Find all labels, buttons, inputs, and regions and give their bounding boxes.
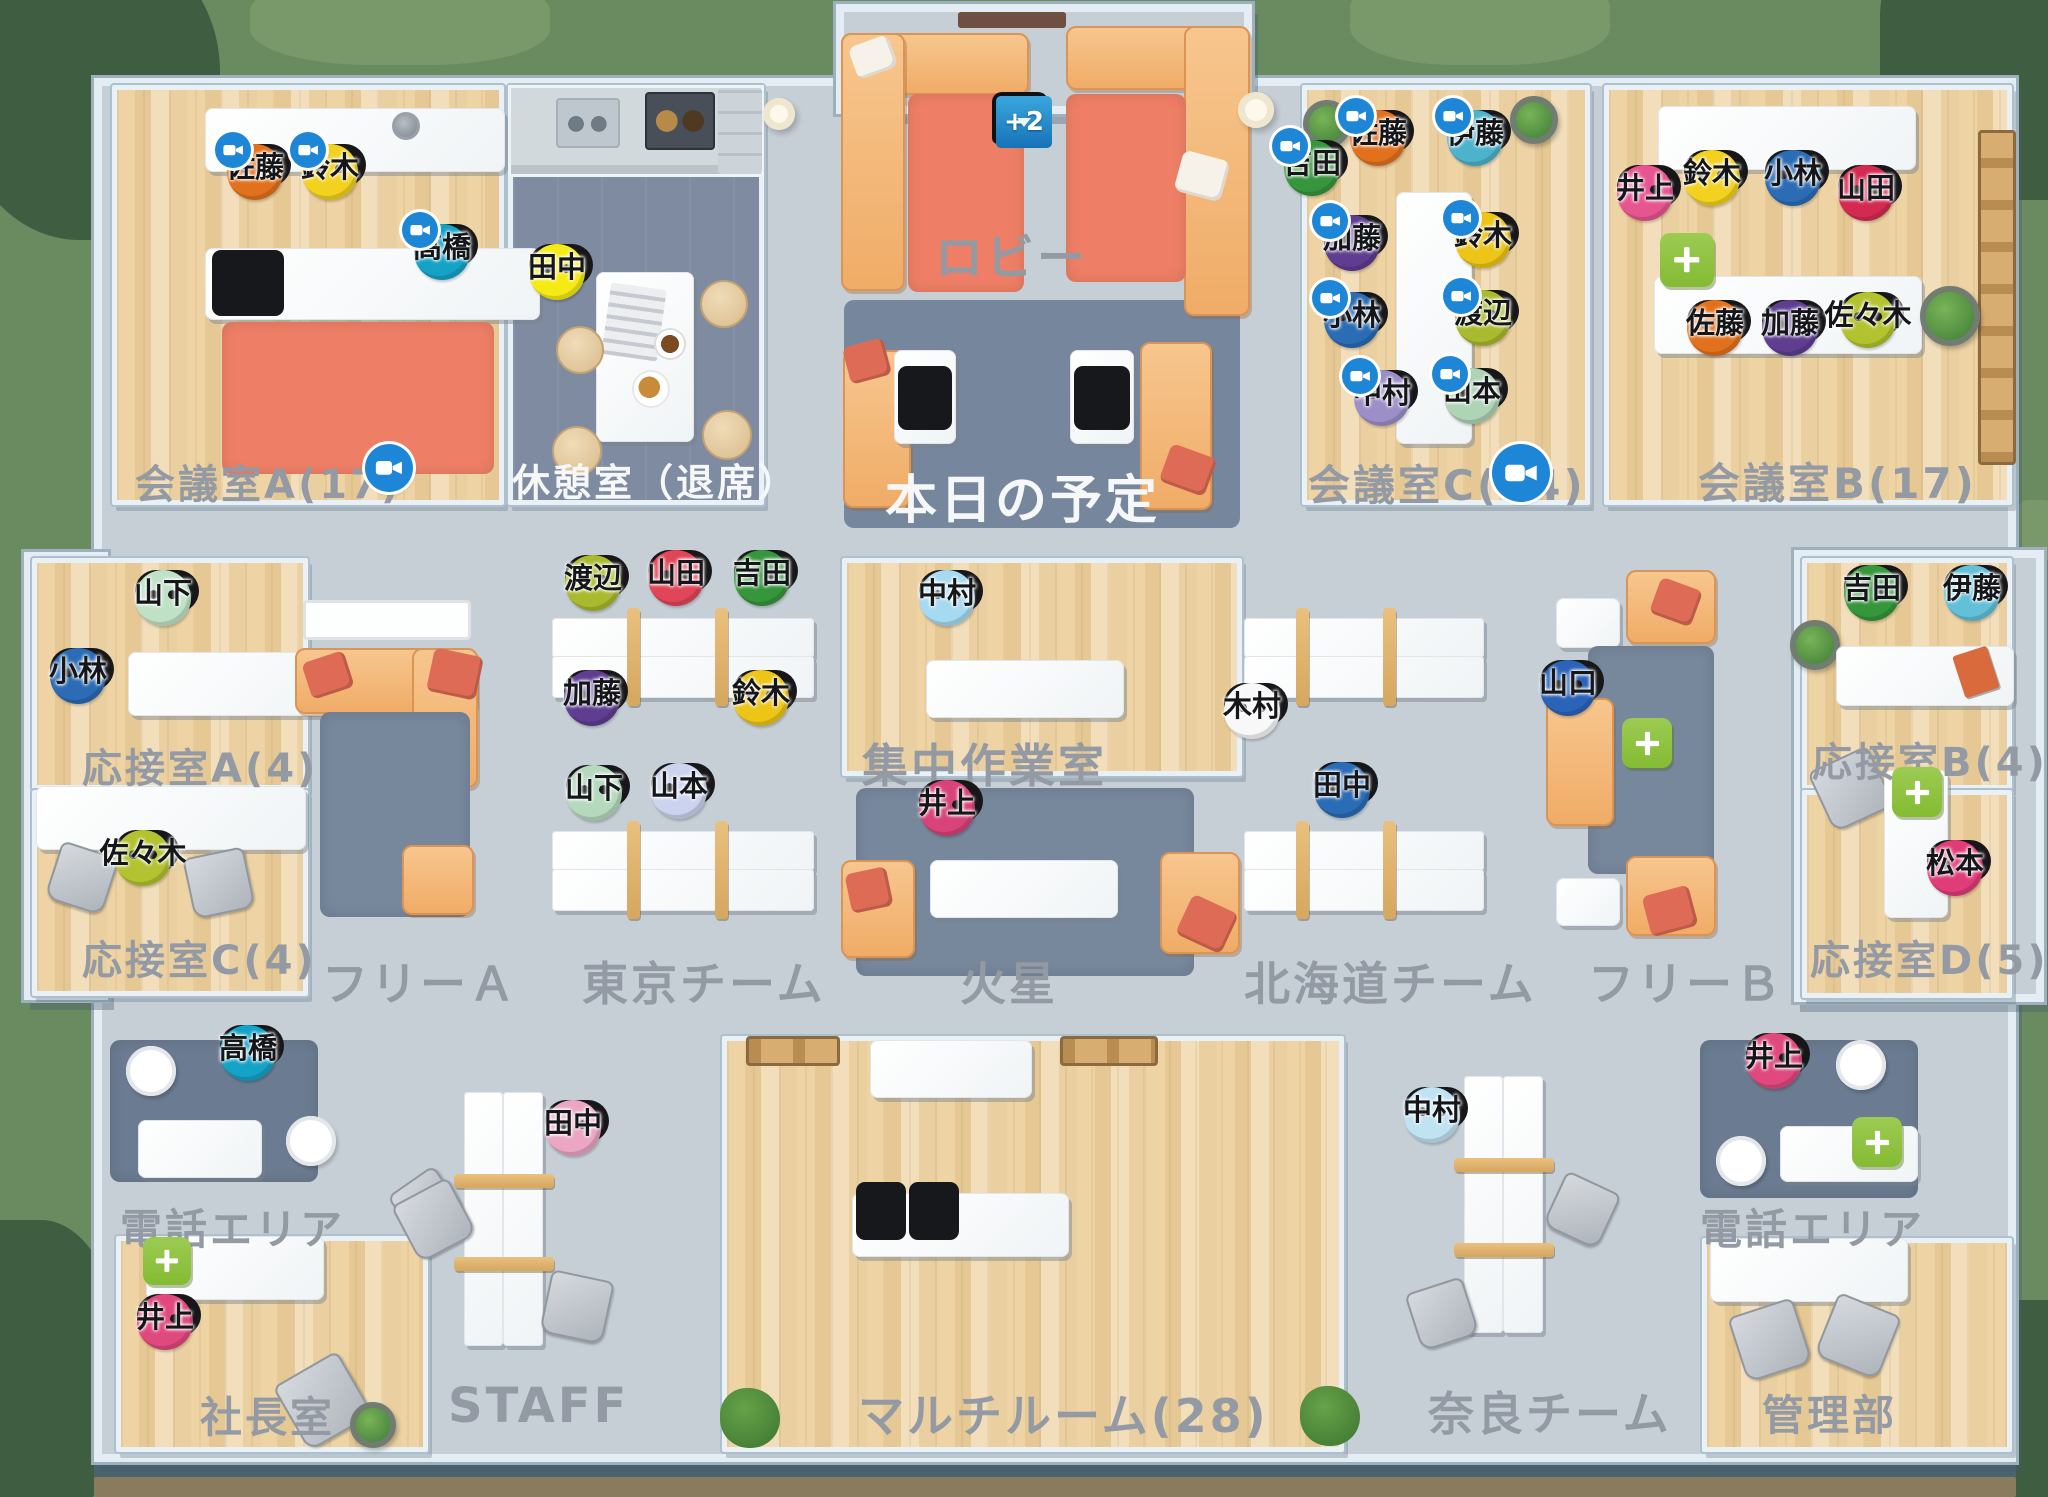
add-object-button[interactable] <box>1852 1117 1902 1167</box>
video-on-badge-icon <box>1312 203 1348 239</box>
room-label-phone-area-right: 電話エリア <box>1700 1196 1925 1257</box>
cafe-chair <box>700 280 748 328</box>
office-chair <box>182 846 256 920</box>
avatar-name: 中村 <box>918 570 976 612</box>
room-label-free-b: フリーＢ <box>1588 948 1784 1014</box>
avatar[interactable]: 伊藤 <box>1447 110 1503 166</box>
monitor-share-icon <box>856 1182 906 1240</box>
desk-divider <box>1454 1158 1554 1172</box>
pod-chair <box>1716 1136 1766 1186</box>
bush <box>720 1388 780 1448</box>
avatar-name: 山口 <box>1539 660 1597 702</box>
avatar[interactable]: 鈴木 <box>302 144 358 200</box>
room-label-break-room: 休憩室（退席） <box>512 452 799 507</box>
video-on-badge-icon <box>1435 98 1471 134</box>
add-object-button[interactable] <box>1660 233 1714 287</box>
video-on-badge-icon <box>1443 278 1479 314</box>
room-label-recep-d: 応接室D(5) <box>1810 928 2048 986</box>
avatar-name: 伊藤 <box>1943 565 2001 607</box>
desk-divider <box>627 821 640 919</box>
avatar[interactable]: 伊藤 <box>1944 565 2000 621</box>
room-label-recep-c: 応接室C(4) <box>82 928 317 986</box>
room-label-lobby: ロビー <box>935 218 1088 288</box>
avatar-name: 田中 <box>544 1100 602 1142</box>
room-label-admin-dept: 管理部 <box>1762 1382 1897 1443</box>
desk <box>1244 831 1484 871</box>
table <box>930 860 1118 918</box>
avatar-name: 山田 <box>647 550 705 592</box>
office-chair <box>539 1269 615 1345</box>
room-label-multi-room: マルチルーム(28) <box>858 1380 1269 1446</box>
desk-divider <box>1296 608 1309 706</box>
avatar[interactable]: 山本 <box>1444 368 1500 424</box>
room-label-free-a: フリーＡ <box>322 948 518 1014</box>
add-object-button[interactable] <box>1892 767 1942 817</box>
video-on-badge-icon <box>1432 356 1468 392</box>
room-label-meeting-b: 会議室B(17) <box>1698 450 1977 511</box>
cushion <box>844 866 893 914</box>
room-video-call-icon[interactable] <box>1492 444 1550 502</box>
avatar-name: 山下 <box>565 765 623 807</box>
table <box>870 1040 1032 1098</box>
avatar[interactable]: 田中 <box>1314 762 1370 818</box>
sofa <box>402 845 474 915</box>
avatar-name: 山田 <box>1837 165 1895 207</box>
exterior-walkway <box>94 1477 2016 1497</box>
avatar-name: 高橋 <box>219 1025 277 1067</box>
potted-plant <box>1510 96 1558 144</box>
pod-chair <box>286 1116 336 1166</box>
desk <box>503 1092 543 1346</box>
wood-shelf <box>746 1036 840 1066</box>
bush <box>1300 1386 1360 1446</box>
whiteboard <box>303 600 471 640</box>
desk-divider <box>1383 821 1396 919</box>
wood-shelf <box>1978 130 2016 465</box>
video-on-badge-icon <box>1342 358 1378 394</box>
avatar-name: 小林 <box>1764 150 1822 192</box>
outdoor-light-patch <box>1350 0 1610 65</box>
outdoor-light-patch <box>250 0 550 65</box>
avatar[interactable]: 小林 <box>1324 292 1380 348</box>
avatar-name: 山本 <box>650 763 708 805</box>
avatar-name: 吉田 <box>1843 565 1901 607</box>
wood-shelf <box>1060 1036 1158 1066</box>
coffee-cup <box>656 330 684 358</box>
video-on-badge-icon <box>290 132 326 168</box>
room-label-tokyo-team: 東京チーム <box>582 948 826 1014</box>
video-on-badge-icon <box>1443 200 1479 236</box>
video-on-badge-icon <box>1272 128 1308 164</box>
avatar[interactable]: 鈴木 <box>1455 212 1511 268</box>
room-label-ceo-office: 社長室 <box>200 1384 335 1445</box>
avatar[interactable]: 加藤 <box>1324 215 1380 271</box>
kitchen-sink <box>556 98 620 148</box>
avatar-name: 加藤 <box>1761 300 1819 342</box>
video-on-badge-icon <box>402 212 438 248</box>
avatar[interactable]: 加藤 <box>1762 300 1818 356</box>
avatar[interactable]: 佐々木 <box>115 830 171 886</box>
wall-lamp <box>1238 92 1274 128</box>
pod-chair <box>126 1046 176 1096</box>
avatar[interactable]: 佐藤 <box>1687 300 1743 356</box>
door-mat <box>958 12 1066 28</box>
avatar[interactable]: 井上 <box>1617 165 1673 221</box>
pod-chair <box>1836 1040 1886 1090</box>
avatar[interactable]: 吉田 <box>1284 140 1340 196</box>
table <box>1556 598 1620 648</box>
desk-divider <box>1454 1243 1554 1257</box>
avatar-name: 中村 <box>1403 1087 1461 1129</box>
avatar[interactable]: 井上 <box>1746 1033 1802 1089</box>
avatar[interactable]: 山口 <box>1540 660 1596 716</box>
avatar[interactable]: 中村 <box>1354 370 1410 426</box>
avatar-name: 佐藤 <box>1686 300 1744 342</box>
avatar[interactable]: 吉田 <box>734 550 790 606</box>
avatar[interactable]: 渡辺 <box>565 555 621 611</box>
avatar[interactable]: 鈴木 <box>733 670 789 726</box>
avatar[interactable]: 中村 <box>1404 1087 1460 1143</box>
avatar[interactable]: 山本 <box>651 763 707 819</box>
avatar[interactable]: 高橋 <box>414 224 470 280</box>
avatar-name: 井上 <box>136 1294 194 1336</box>
avatar[interactable]: 吉田 <box>1844 565 1900 621</box>
potted-plant <box>1790 620 1840 670</box>
desk <box>1244 869 1484 911</box>
monitor-grid-icon <box>1074 366 1130 430</box>
avatar[interactable]: 鈴木 <box>1684 150 1740 206</box>
video-on-badge-icon <box>215 132 251 168</box>
desk <box>552 869 814 911</box>
avatar-name: 松本 <box>1926 840 1984 882</box>
room-label-recep-a: 応接室A(4) <box>82 736 318 794</box>
avatar[interactable]: 井上 <box>137 1294 193 1350</box>
desk-divider <box>715 608 728 706</box>
room-label-meeting-a: 会議室A(17) <box>135 452 402 510</box>
avatar[interactable]: 小林 <box>50 648 106 704</box>
kitchen-fridge <box>718 88 762 174</box>
avatar[interactable]: 高橋 <box>220 1025 276 1081</box>
avatar-name: 井上 <box>1616 165 1674 207</box>
cafe-chair <box>556 326 604 374</box>
avatar-name: 山下 <box>134 570 192 612</box>
kitchen-stove <box>645 92 715 150</box>
avatar-name: 鈴木 <box>732 670 790 712</box>
avatar[interactable]: 山下 <box>566 765 622 821</box>
table <box>1556 878 1620 926</box>
desk-divider <box>1383 608 1396 706</box>
avatar[interactable]: 佐藤 <box>227 144 283 200</box>
sofa <box>1546 698 1614 826</box>
avatar-name: 田中 <box>528 244 586 286</box>
monitor-list-icon <box>212 250 284 316</box>
desk-divider <box>1296 821 1309 919</box>
avatar-name: 吉田 <box>733 550 791 592</box>
room-label-mars: 火星 <box>960 948 1058 1014</box>
chevron-down-icon <box>1017 118 1031 127</box>
desk-divider <box>454 1257 554 1271</box>
avatar[interactable]: 小林 <box>1765 150 1821 206</box>
avatar-name: 木村 <box>1223 683 1281 725</box>
avatar[interactable]: 佐藤 <box>1350 110 1406 166</box>
desk <box>552 831 814 871</box>
table <box>926 660 1124 718</box>
monitor-share-icon <box>909 1182 959 1240</box>
desk <box>1464 1076 1503 1333</box>
desk <box>552 618 814 658</box>
avatar[interactable]: 佐々木 <box>1840 292 1896 348</box>
video-on-badge-icon <box>1312 280 1348 316</box>
avatar[interactable]: 井上 <box>919 780 975 836</box>
avatar[interactable]: 加藤 <box>564 670 620 726</box>
wall-lamp <box>763 98 795 130</box>
floor-plan: 会議室A(17)休憩室（退席）ロビー本日の予定会議室C(14)会議室B(17)応… <box>0 0 2048 1497</box>
avatar-name: 小林 <box>49 648 107 690</box>
avatar-name: 井上 <box>918 780 976 822</box>
room-label-schedule: 本日の予定 <box>885 458 1160 533</box>
avatar[interactable]: 山田 <box>1838 165 1894 221</box>
add-object-button[interactable] <box>1622 718 1672 768</box>
avatar[interactable]: 木村 <box>1224 683 1280 739</box>
overflow-users-indicator[interactable]: +2 <box>992 92 1048 144</box>
table <box>138 1120 262 1178</box>
snack-plate <box>634 372 668 406</box>
avatar[interactable]: 渡辺 <box>1455 290 1511 346</box>
room-label-staff: STAFF <box>448 1378 629 1434</box>
potted-plant <box>1920 286 1980 346</box>
avatar-name: 佐々木 <box>1824 292 1911 334</box>
room-video-call-icon[interactable] <box>365 444 413 492</box>
desk-divider <box>454 1174 554 1188</box>
video-on-badge-icon <box>1338 98 1374 134</box>
avatar-name: 加藤 <box>563 670 621 712</box>
avatar-name: 井上 <box>1745 1033 1803 1075</box>
avatar-name: 鈴木 <box>1683 150 1741 192</box>
room-label-nara-team: 奈良チーム <box>1428 1378 1672 1444</box>
wall-camera <box>392 112 420 140</box>
avatar[interactable]: 田中 <box>529 244 585 300</box>
avatar[interactable]: 山下 <box>135 570 191 626</box>
monitor-building-icon <box>898 366 952 430</box>
room-label-focus-room: 集中作業室 <box>862 730 1107 796</box>
desk-divider <box>715 821 728 919</box>
desk <box>1503 1076 1543 1333</box>
add-object-button[interactable] <box>143 1237 191 1285</box>
avatar-name: 佐々木 <box>99 830 186 872</box>
potted-plant <box>350 1402 396 1448</box>
room-label-hokkaido-team: 北海道チーム <box>1244 948 1537 1014</box>
avatar-name: 渡辺 <box>564 555 622 597</box>
avatar[interactable]: 田中 <box>545 1100 601 1156</box>
avatar[interactable]: 松本 <box>1927 840 1983 896</box>
avatar[interactable]: 山田 <box>648 550 704 606</box>
avatar-name: 田中 <box>1313 762 1371 804</box>
desk-divider <box>627 608 640 706</box>
desk <box>1244 618 1484 658</box>
avatar[interactable]: 中村 <box>919 570 975 626</box>
